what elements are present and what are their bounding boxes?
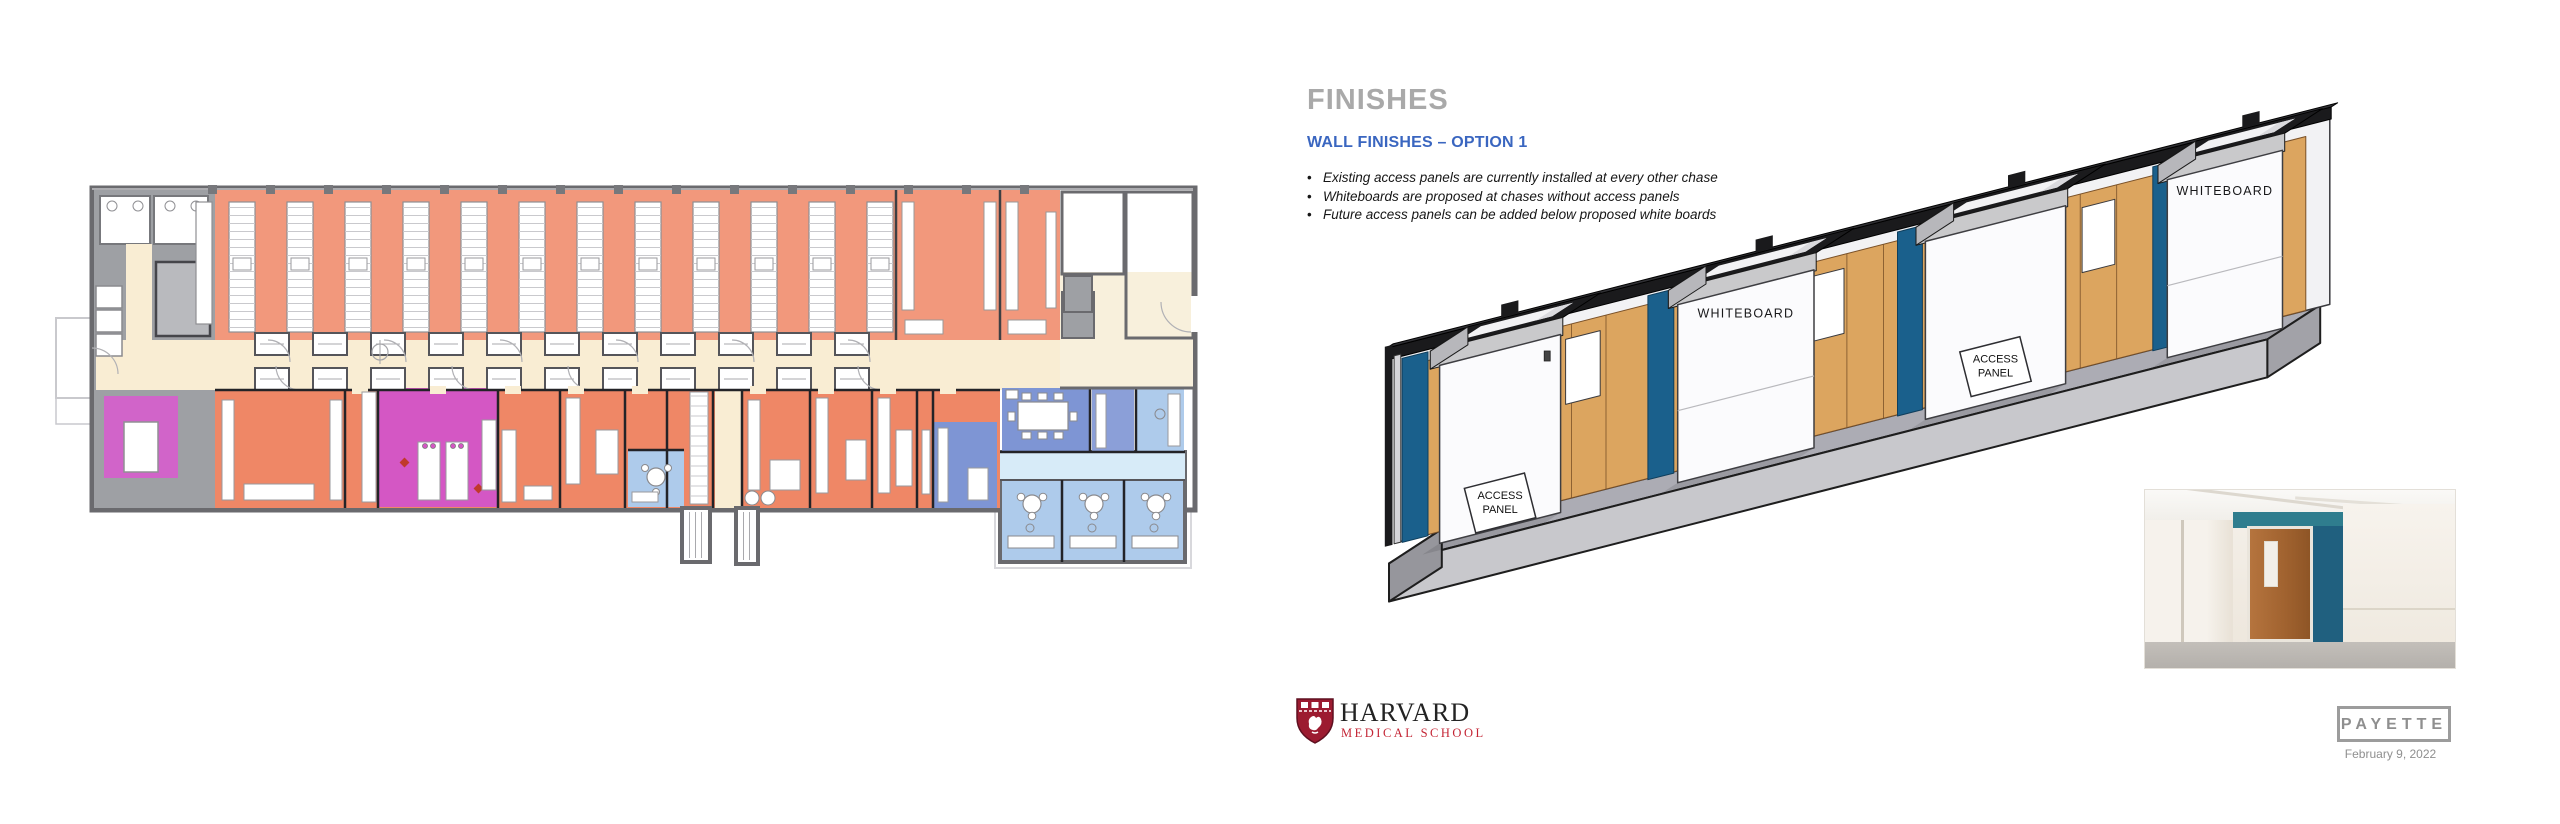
svg-text:PANEL: PANEL bbox=[1978, 368, 2013, 380]
svg-text:WHITEBOARD: WHITEBOARD bbox=[2177, 184, 2274, 198]
harvard-school-line: MEDICAL SCHOOL bbox=[1341, 726, 1486, 741]
photo-wood-door bbox=[2247, 526, 2313, 642]
harvard-logo: HARVARD MEDICAL SCHOOL bbox=[1296, 696, 1556, 746]
floor-plan-drawing bbox=[30, 95, 1250, 695]
harvard-wordmark: HARVARD bbox=[1340, 698, 1470, 728]
svg-text:PANEL: PANEL bbox=[1482, 504, 1517, 516]
plan-stair-exits bbox=[682, 508, 758, 564]
photo-door-lite bbox=[2264, 541, 2278, 587]
payette-logo: PAYETTE February 9, 2022 bbox=[2330, 706, 2460, 761]
photo-panel-joint bbox=[2343, 608, 2455, 610]
photo-accent-wall bbox=[2313, 526, 2343, 652]
harvard-shield-icon bbox=[1296, 698, 1334, 744]
svg-text:ACCESS: ACCESS bbox=[1477, 490, 1522, 502]
payette-wordmark: PAYETTE bbox=[2337, 706, 2451, 742]
slide: FINISHES WALL FINISHES – OPTION 1 •Exist… bbox=[0, 0, 2560, 824]
photo-carpet-floor bbox=[2145, 642, 2455, 668]
plan-entry-canopy bbox=[56, 318, 93, 424]
photo-right-wall bbox=[2343, 504, 2455, 652]
corridor-photo bbox=[2145, 490, 2455, 668]
svg-text:WHITEBOARD: WHITEBOARD bbox=[1698, 306, 1795, 320]
date-label: February 9, 2022 bbox=[2330, 747, 2451, 761]
svg-text:ACCESS: ACCESS bbox=[1973, 354, 2018, 366]
